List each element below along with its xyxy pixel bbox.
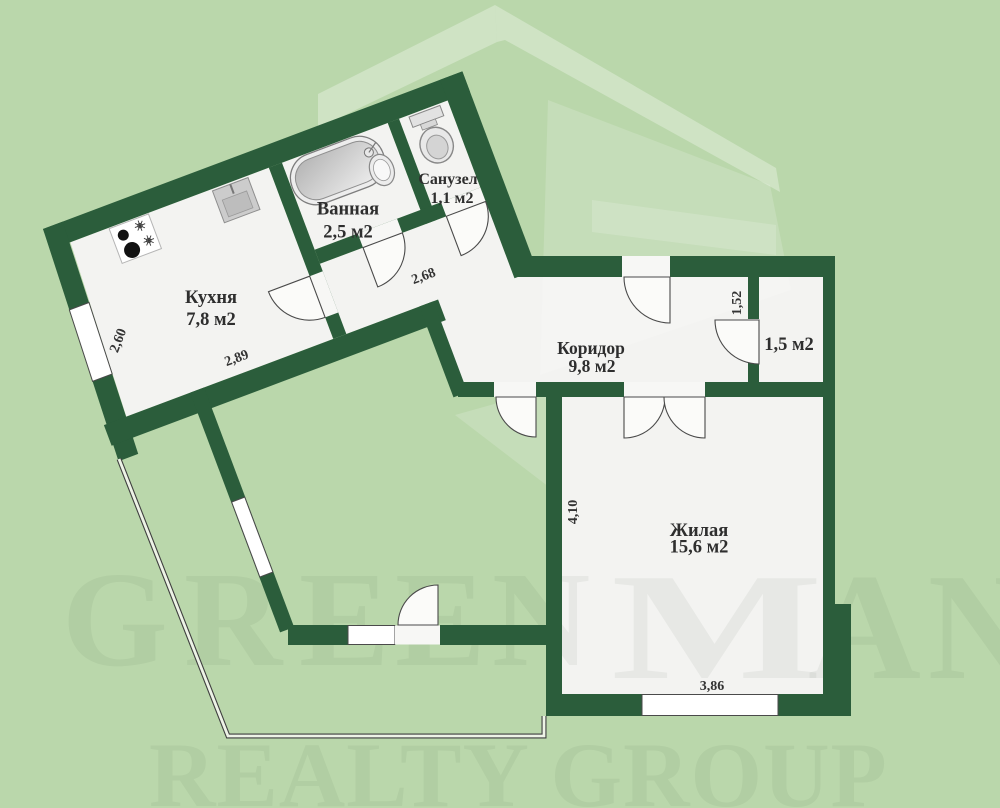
svg-text:E: E [299,545,390,695]
svg-text:4,10: 4,10 [566,500,581,525]
svg-text:N: N [928,542,1000,711]
svg-text:N: N [492,545,590,695]
svg-text:3,86: 3,86 [700,679,725,694]
svg-text:7,8 м2: 7,8 м2 [186,310,236,330]
svg-text:Санузел: Санузел [418,171,477,188]
svg-text:9,8 м2: 9,8 м2 [569,356,616,376]
svg-text:Кухня: Кухня [185,288,237,308]
svg-text:G: G [62,545,168,695]
svg-text:Коридор: Коридор [557,338,625,358]
svg-text:1,1 м2: 1,1 м2 [431,190,474,207]
svg-text:Ванная: Ванная [317,200,379,220]
svg-text:1,52: 1,52 [730,291,745,316]
svg-text:1,5 м2: 1,5 м2 [764,335,814,355]
svg-text:15,6 м2: 15,6 м2 [670,538,729,558]
svg-text:2,5 м2: 2,5 м2 [323,223,373,243]
